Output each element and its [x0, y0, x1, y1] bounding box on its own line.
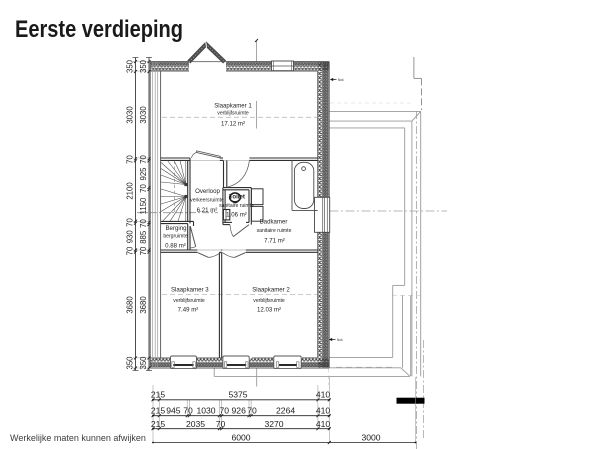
svg-text:70: 70	[220, 406, 230, 416]
svg-text:Slaapkamer 3: Slaapkamer 3	[171, 287, 209, 294]
svg-text:5375: 5375	[228, 390, 247, 400]
svg-text:3680: 3680	[139, 296, 148, 314]
svg-text:930: 930	[126, 230, 135, 244]
svg-text:6000: 6000	[231, 432, 250, 442]
svg-text:0.88 m²: 0.88 m²	[165, 243, 186, 250]
svg-text:350: 350	[139, 59, 148, 73]
svg-text:350: 350	[139, 356, 148, 370]
svg-text:verblijfsruimte: verblijfsruimte	[217, 111, 249, 117]
svg-text:410: 410	[316, 390, 331, 400]
svg-text:70: 70	[216, 419, 226, 429]
svg-text:Nok: Nok	[338, 78, 344, 82]
svg-text:2035: 2035	[186, 419, 205, 429]
svg-text:410: 410	[316, 406, 331, 416]
svg-text:Overloop: Overloop	[195, 188, 220, 195]
svg-text:926: 926	[232, 406, 247, 416]
svg-text:Slaapkamer 2: Slaapkamer 2	[252, 287, 290, 294]
svg-text:Berging: Berging	[165, 225, 186, 232]
svg-text:70: 70	[139, 184, 148, 193]
svg-text:925: 925	[139, 167, 148, 181]
svg-text:215: 215	[151, 390, 166, 400]
svg-text:sanitaire ruimte: sanitaire ruimte	[257, 228, 292, 234]
svg-text:3030: 3030	[126, 106, 135, 124]
svg-text:3000: 3000	[361, 432, 380, 442]
svg-text:3270: 3270	[264, 419, 283, 429]
svg-text:3030: 3030	[139, 106, 148, 124]
svg-text:12.03 m²: 12.03 m²	[257, 307, 281, 314]
svg-text:1150: 1150	[139, 197, 148, 214]
svg-text:350: 350	[126, 356, 135, 370]
svg-text:3680: 3680	[126, 296, 135, 314]
svg-text:70: 70	[126, 155, 135, 164]
svg-text:Nok: Nok	[337, 338, 343, 342]
svg-text:bergruimte: bergruimte	[163, 234, 188, 240]
svg-text:6.21 m²: 6.21 m²	[197, 207, 218, 214]
svg-text:70: 70	[139, 246, 148, 255]
svg-text:Slaapkamer 1: Slaapkamer 1	[214, 103, 252, 110]
svg-text:sanitaire ruimte: sanitaire ruimte	[219, 203, 254, 209]
svg-text:Toilet: Toilet	[229, 194, 245, 201]
svg-text:verblijfsruimte: verblijfsruimte	[173, 298, 205, 304]
svg-text:Badkamer: Badkamer	[260, 219, 288, 226]
svg-text:70: 70	[183, 406, 193, 416]
svg-text:Werkelijke maten kunnen afwijk: Werkelijke maten kunnen afwijken	[10, 433, 146, 443]
svg-text:215: 215	[151, 419, 166, 429]
svg-text:885: 885	[139, 230, 148, 244]
svg-text:945: 945	[166, 406, 181, 416]
svg-text:215: 215	[151, 406, 166, 416]
svg-text:70: 70	[139, 155, 148, 164]
svg-text:70: 70	[247, 406, 257, 416]
svg-text:350: 350	[126, 59, 135, 73]
svg-text:17.12 m²: 17.12 m²	[221, 120, 245, 127]
svg-text:70: 70	[139, 219, 148, 228]
svg-text:1.06 m²: 1.06 m²	[226, 212, 247, 219]
svg-text:7.49 m²: 7.49 m²	[178, 307, 199, 314]
svg-text:70: 70	[126, 246, 135, 255]
svg-text:1030: 1030	[196, 406, 215, 416]
svg-text:verblijfsruimte: verblijfsruimte	[253, 298, 285, 304]
svg-text:Eerste verdieping: Eerste verdieping	[15, 16, 183, 43]
svg-text:2100: 2100	[126, 182, 135, 200]
svg-text:7.71 m²: 7.71 m²	[264, 238, 285, 245]
svg-text:70: 70	[126, 218, 135, 227]
svg-text:2264: 2264	[276, 406, 295, 416]
svg-text:410: 410	[316, 419, 331, 429]
